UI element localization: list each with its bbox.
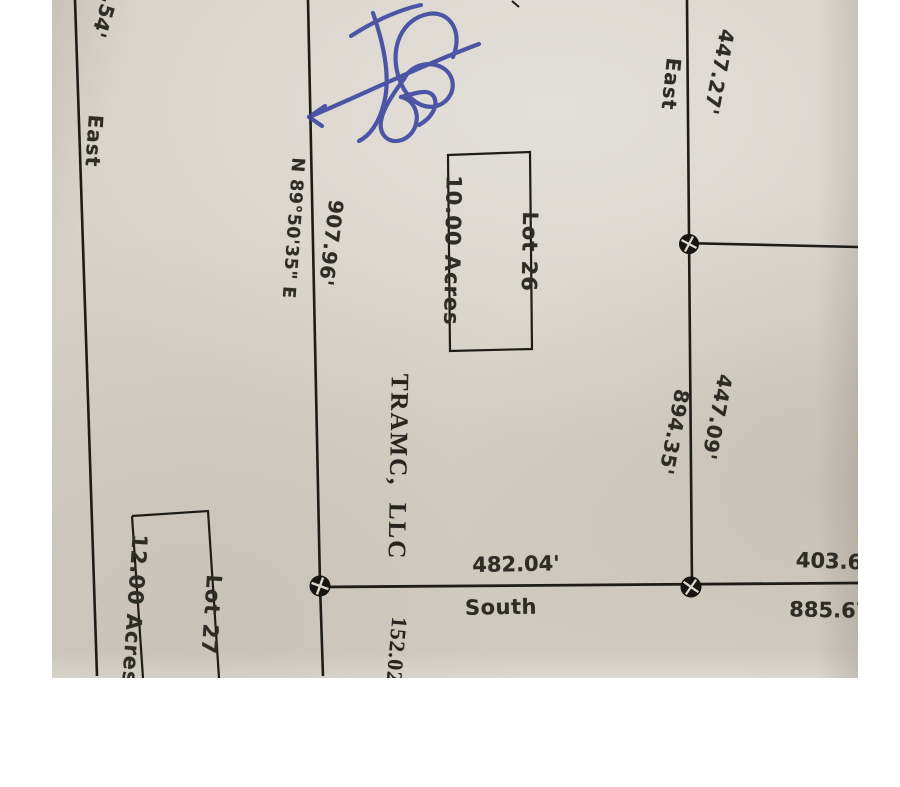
lot26-label: Lot 26 10.00 Acres — [386, 149, 594, 353]
dimension-south-line-inner: 482.04' — [472, 551, 560, 578]
lot-boundary-line-east — [687, 0, 692, 587]
dimension-partial-bottom: 152.02 — [380, 616, 413, 678]
direction-label-south-line: South — [465, 595, 537, 622]
lot26-acreage: 10.00 Acres — [437, 150, 466, 350]
plat-photo: .54' East N 89°50'35" E 907.96' East 447… — [52, 0, 858, 678]
owner-label: TRAMC, LLC — [380, 373, 414, 560]
dimension-south-line-outer-bottom: 885.67' — [789, 597, 858, 624]
lot27-name: Lot 27 — [190, 504, 231, 678]
direction-label-west-line: East — [80, 114, 108, 168]
lot26-name: Lot 26 — [514, 151, 543, 351]
page-background: .54' East N 89°50'35" E 907.96' East 447… — [0, 0, 900, 787]
survey-monument-icon — [676, 572, 705, 601]
lot27-label: Lot 27 12.00 Acres — [62, 495, 282, 678]
lot27-acreage: 12.00 Acres — [113, 499, 154, 678]
dimension-south-line-outer-top: 403.6 — [795, 548, 858, 576]
stray-mark — [512, 1, 519, 7]
pen-scribble-icon — [309, 5, 479, 141]
survey-monument-icon — [675, 230, 702, 257]
lot-boundary-line-south — [320, 583, 858, 587]
lot-boundary-line-west — [308, 0, 323, 676]
lot-boundary-line-north-spur — [681, 243, 858, 247]
survey-monument-icon — [307, 573, 334, 600]
